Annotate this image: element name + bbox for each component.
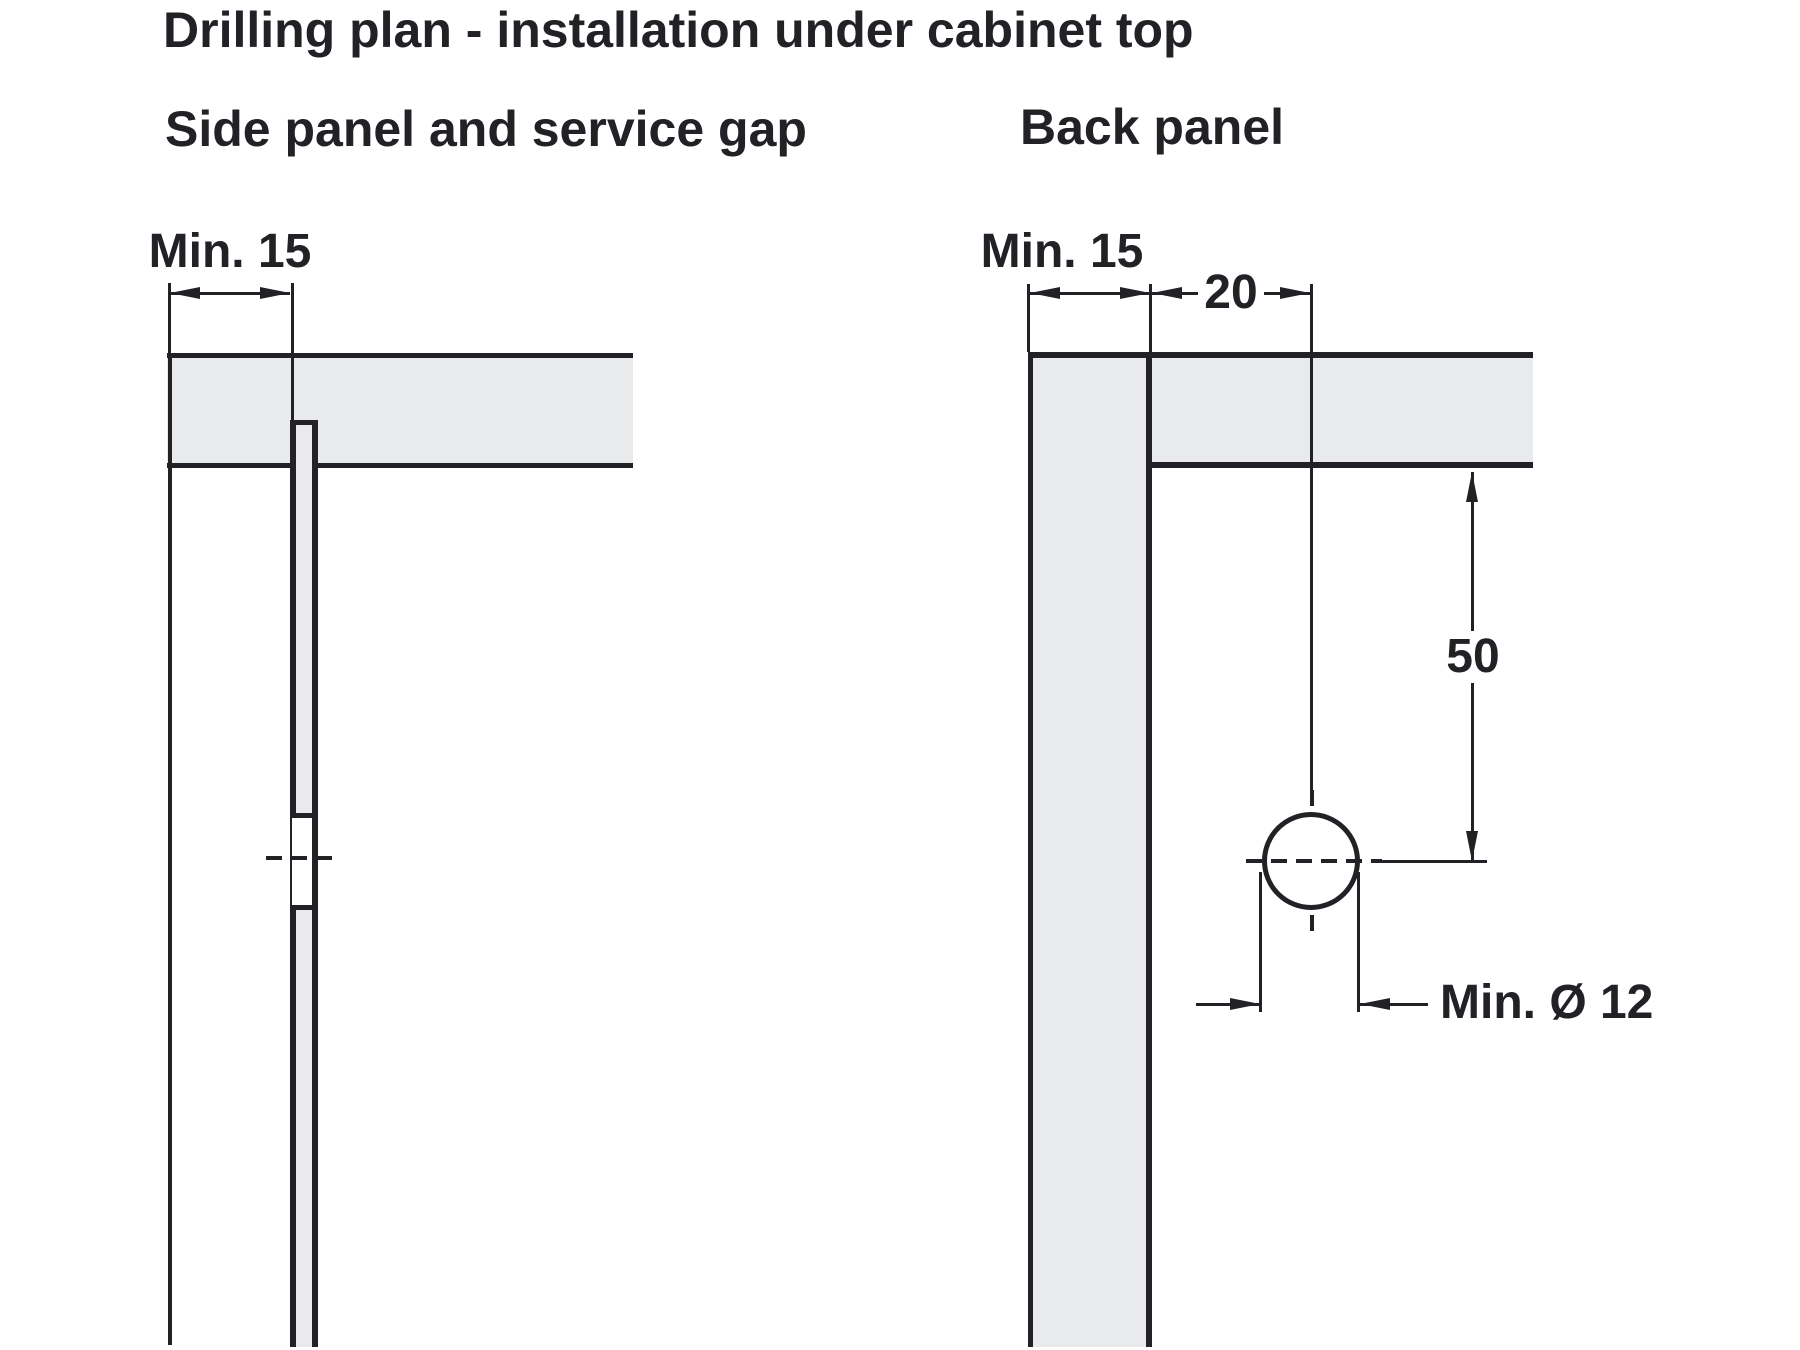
right-dim-label-min15: Min. 15 — [972, 228, 1152, 276]
hole-centerline-solid — [1310, 284, 1313, 790]
right-section-heading: Back panel — [1020, 102, 1284, 152]
left-dim-arrow-right-icon — [260, 287, 290, 299]
dim-20-label: 20 — [1198, 268, 1264, 318]
dim-50-arrow-up-icon — [1466, 472, 1478, 502]
back-panel-slab — [1028, 352, 1152, 1347]
dim-20-arrow-right-icon — [1280, 287, 1310, 299]
service-gap-strip-break — [290, 813, 318, 910]
left-side-panel-edge-line — [168, 353, 172, 1345]
dim-50-arrow-down-icon — [1466, 831, 1478, 861]
hole-centerline-dashed-horizontal — [1246, 859, 1382, 863]
service-gap-centerline-dashes — [266, 856, 340, 860]
right-dim-min15-arrow-left-icon — [1030, 287, 1060, 299]
hole-tangent-extension-right — [1357, 872, 1360, 1012]
left-dim-label-min15: Min. 15 — [140, 228, 320, 276]
dia-dim-arrow-right-icon — [1230, 998, 1260, 1010]
dim-20-arrow-left-icon — [1152, 287, 1182, 299]
dim-50-label: 50 — [1433, 631, 1513, 683]
left-dim-arrow-left-icon — [170, 287, 200, 299]
page-title: Drilling plan - installation under cabin… — [163, 5, 1194, 55]
right-cabinet-top-slab — [1152, 352, 1533, 468]
right-dim-min15-arrow-right-icon — [1120, 287, 1150, 299]
dia-dim-arrow-left-icon — [1360, 998, 1390, 1010]
dia-dim-label: Min. Ø 12 — [1440, 979, 1653, 1027]
left-section-heading: Side panel and service gap — [165, 104, 807, 154]
drilling-plan-diagram: Drilling plan - installation under cabin… — [0, 0, 1800, 1350]
hole-tangent-extension-left — [1259, 872, 1262, 1012]
service-gap-strip-upper — [290, 420, 318, 813]
left-dim-extension-line-right — [291, 283, 294, 420]
left-cabinet-top-slab — [167, 353, 633, 468]
service-gap-strip-lower — [290, 910, 318, 1347]
